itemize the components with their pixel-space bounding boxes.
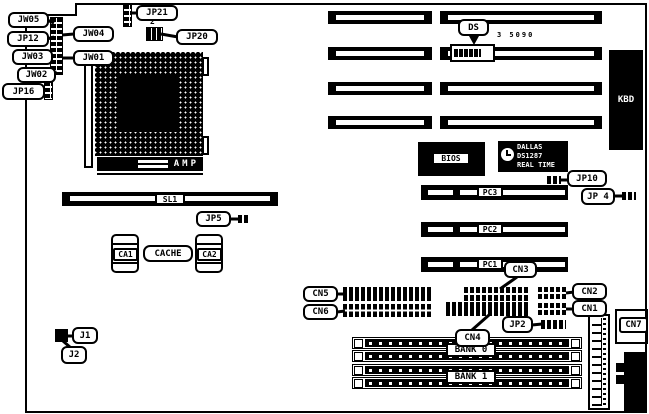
bank1-label: BANK 1 [446,370,496,384]
label-j2: J2 [61,346,87,364]
label-jw05: JW05 [8,12,49,28]
socket-lever [84,57,93,168]
pc2-label: PC2 [477,223,503,235]
pointer-line [337,311,345,312]
label-cn7: CN7 [619,317,648,333]
pointer-line [500,277,517,289]
label-ds: DS [458,19,489,36]
bios-label: BIOS [432,152,470,165]
label-cn2: CN2 [572,283,607,300]
label-cn5: CN5 [303,286,338,302]
pointer-triangle [469,36,479,45]
sl1-label: SL1 [155,193,185,205]
label-jp2: JP2 [502,316,533,333]
label-jp20: JP20 [176,29,218,45]
label-jp21: JP21 [136,5,178,21]
board-edge [26,4,646,412]
pc1-label: PC1 [477,258,503,270]
label-jw01: JW01 [73,50,114,66]
label-cn6: CN6 [303,304,338,320]
label-cn4: CN4 [455,329,490,347]
motherboard-diagram: 2 JW05 JP12 JW03 JW02 JW04 JW01 JP16 JP2… [0,0,649,414]
label-jw04: JW04 [73,26,114,42]
label-jp4: JP 4 [581,188,615,205]
label-j1: J1 [72,327,98,344]
label-jp12: JP12 [7,31,49,47]
label-cn1: CN1 [572,300,607,317]
ca1-label: CA1 [113,248,138,261]
label-jp16: JP16 [2,83,45,100]
label-jw02: JW02 [17,67,56,83]
label-jw03: JW03 [12,49,53,65]
pc3-label: PC3 [477,186,503,198]
label-jp5: JP5 [196,211,231,227]
ca2-label: CA2 [197,248,222,261]
label-cn3: CN3 [504,261,537,278]
label-jp10: JP10 [567,170,607,187]
label-cache: CACHE [143,245,193,262]
pointer-line [472,315,489,330]
pointer-line [532,324,542,325]
